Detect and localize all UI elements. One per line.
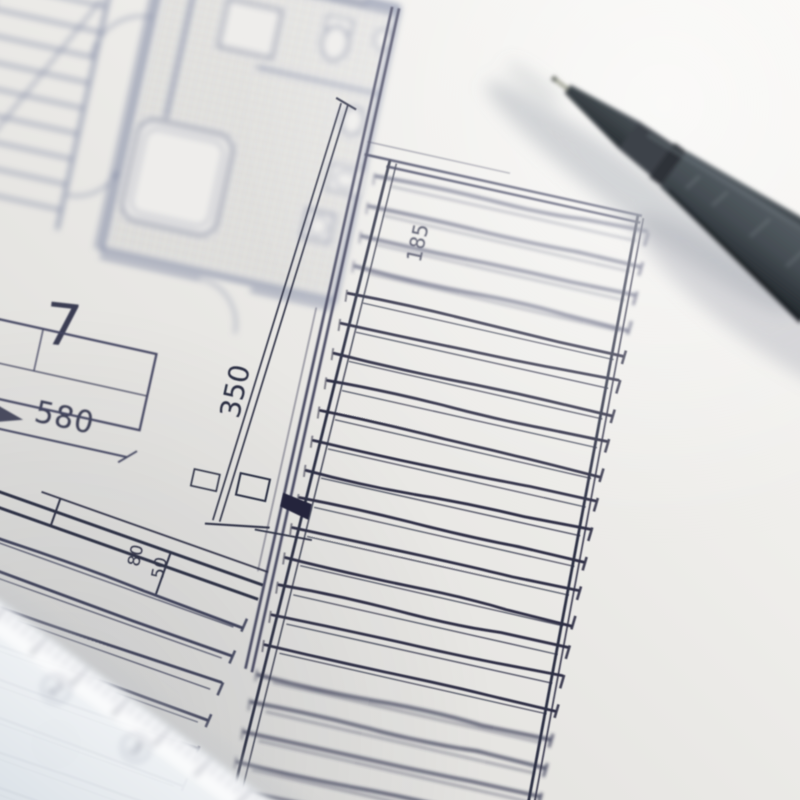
photo-stage: 7 580 185 350 80 — [0, 0, 800, 800]
scene-photo: 7 580 185 350 80 — [0, 0, 800, 800]
